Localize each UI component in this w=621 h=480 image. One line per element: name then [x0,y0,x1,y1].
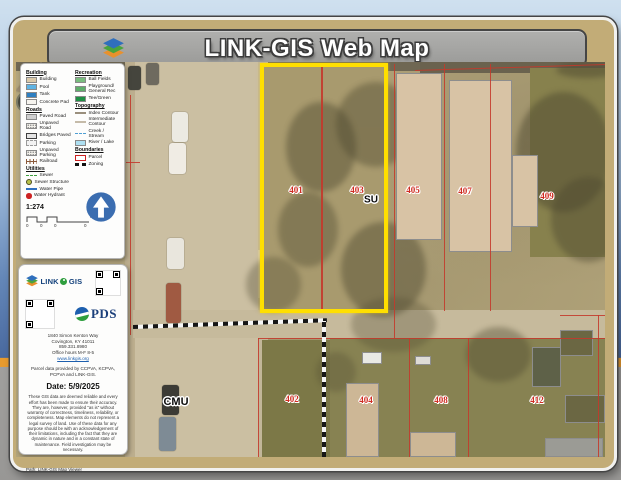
legend-item-label: Parcel [89,155,103,160]
legend-item-label: Creek / Stream [89,129,121,139]
website-link: www.linkgis.org [25,356,121,361]
legend-item-label: Concrete Pad [40,100,69,105]
parcel-line [490,64,491,311]
fill-swatch [75,140,86,146]
legend-item-label: Zoning [89,162,104,167]
qr-code [25,299,55,329]
north-arrow [85,191,117,228]
parcel-label-405: 405 [406,185,420,195]
legend-item: Railroad [26,159,71,164]
page-title: LINK-GIS Web Map [205,35,430,63]
tree-canopy [466,327,531,382]
legend-item: Water Pipe [26,187,71,192]
map-pin-icon [60,278,67,285]
parked-car [166,283,181,323]
line-swatch [75,121,86,123]
legend-item: River / Lake [75,140,120,146]
info-panel: LINK GIS PDS [18,264,128,455]
legend-section-header: Building [26,70,71,76]
legend-item: Unpaved Parking [26,148,71,158]
legend-item-label: Playground/ General Rec [89,84,121,94]
legend-item-label: Parking [40,141,56,146]
parcel-line [468,338,469,457]
parcel-label-402: 402 [285,394,299,404]
qr-code [95,270,121,296]
legend-item-label: Unpaved Road [40,121,72,131]
legend-item: Building [26,77,71,83]
parcel-line [258,338,259,457]
brand-word-link: LINK [41,277,59,286]
zoning-label-SU: SU [364,195,378,206]
fill-swatch [75,77,86,83]
scale-tick-label: 0 [26,223,29,228]
fill-swatch [26,99,37,105]
building-footprint [532,347,561,387]
disclaimer-text: These GIS data are deemed reliable and e… [25,394,121,452]
legend-item-label: Tank [40,92,50,97]
legend-item: Zoning [75,162,120,167]
legend-item: Tee/Green [75,96,120,102]
legend-item-label: Sewer [40,173,54,178]
legend-item-label: Bridges Paved [40,133,71,138]
line-swatch [26,188,37,190]
circle-swatch [26,179,32,185]
legend-item-label: Railroad [40,159,58,164]
fill-swatch [26,84,37,90]
legend-item: Parking [26,140,71,146]
map-canvas[interactable]: 401403405407409402404408412SUCMU Buildin… [16,62,605,457]
map-date: Date: 5/9/2025 [25,382,121,391]
building-footprint [362,352,382,364]
parcel-label-401: 401 [289,185,303,195]
print-footer-path: Path: LINK-GIS Map Viewer [26,467,82,472]
legend-item: Pool [26,84,71,90]
parcel-label-409: 409 [540,191,554,201]
fill-swatch [26,92,37,98]
legend-item-label: Pool [40,85,50,90]
scale-tick-label: 0 [40,223,43,228]
globe-icon [75,307,89,321]
legend-item-label: Sewer Structure [35,180,69,185]
legend-item: Sewer [26,173,71,178]
parcel-line [444,64,445,311]
zoning-label-CMU: CMU [163,396,188,408]
legend-item: Ball Fields [75,77,120,83]
legend-item: Playground/ General Rec [75,84,120,94]
parcel-line [126,162,140,163]
parcel-label-403: 403 [350,185,364,195]
legend-item: Sewer Structure [26,179,71,185]
parcel-line [598,315,599,457]
parcel-line [258,338,605,339]
building-footprint [410,432,456,457]
legend-item: Creek / Stream [75,129,120,139]
legend-item: Parcel [75,155,120,161]
legend-section-header: Roads [26,107,71,113]
fill-swatch [75,86,86,92]
legend-item-label: Water Hydrant [34,193,65,198]
parked-car [169,143,186,174]
thick-outline-swatch [26,133,37,139]
legend-column-left: BuildingBuildingPoolTankConcrete PadRoad… [26,68,71,200]
legend-item: Unpaved Road [26,121,71,131]
legend-section-header: Boundaries [75,147,120,153]
dashdot-line-swatch [75,133,86,134]
legend-item: Water Hydrant [26,193,71,199]
legend-item: Paved Road [26,114,71,120]
legend-section-header: Recreation [75,70,120,76]
scale-tick-label: 0 [54,223,57,228]
building-footprint [545,438,603,457]
fill-swatch [26,77,37,83]
legend-item: Tank [26,92,71,98]
fill-swatch [26,114,37,120]
building-footprint [415,356,431,365]
layers-icon [25,274,39,288]
zoning-dash-swatch [75,163,86,166]
address-line: Office hours M-F 8-5 [25,350,121,356]
legend-item-label: Tee/Green [89,96,111,101]
parcel-label-412: 412 [530,395,544,405]
railroad-swatch [26,159,37,164]
zoning-boundary-line-vertical [322,321,326,457]
legend-panel: BuildingBuildingPoolTankConcrete PadRoad… [20,63,125,259]
pds-logo: PDS [75,306,117,322]
parcel-label-404: 404 [359,395,373,405]
desktop-background: LINK-GIS Web Map 40140340540740940240440… [0,0,621,480]
legend-item-label: Index Contour [89,111,119,116]
legend-section-header: Topography [75,103,120,109]
line-swatch [75,112,86,114]
legend-item-label: Water Pipe [40,187,64,192]
legend-item: Intermediate Contour [75,117,120,127]
parked-car [159,417,176,451]
linkgis-logo: LINK GIS [25,274,82,288]
parked-car [146,63,159,85]
parcel-label-408: 408 [434,395,448,405]
parcel-outline-swatch [75,155,86,161]
parcel-line [130,95,131,335]
legend-section-header: Utilities [26,166,71,172]
dotted-swatch [26,123,37,129]
legend-item-label: Building [40,77,57,82]
legend-item-label: Unpaved Parking [40,148,72,158]
scale-block: 1:274 mi 0000 [26,204,120,240]
dashed-outline-swatch [26,140,37,146]
brand-word-gis: GIS [69,277,83,286]
legend-column-right: RecreationBall FieldsPlayground/ General… [75,68,120,200]
data-credit: Parcel data provided by CCPVA, KCPVA, PC… [25,366,121,377]
legend-item: Index Contour [75,111,120,116]
legend-item-label: Ball Fields [89,77,111,82]
parked-car [128,66,141,90]
parked-car [167,238,184,269]
building-footprint [560,330,593,356]
dotted-swatch [26,150,37,156]
building-footprint [512,155,538,227]
map-window: LINK-GIS Web Map 40140340540740940240440… [10,17,617,471]
legend-item-label: River / Lake [89,140,115,145]
pds-wordmark: PDS [91,306,117,322]
legend-item-label: Intermediate Contour [89,117,121,127]
fill-swatch [75,96,86,102]
legend-item: Bridges Paved [26,133,71,139]
aerial-ground-patch [135,62,258,457]
parked-car [172,112,188,142]
building-footprint [449,80,512,252]
highlighted-parcel-outline [260,63,388,313]
legend-item: Concrete Pad [26,99,71,105]
parcel-line [409,338,410,457]
parcel-line [394,64,395,338]
dot-swatch [26,193,32,199]
parcel-label-407: 407 [458,186,472,196]
building-footprint [396,73,442,240]
legend-item-label: Paved Road [40,114,66,119]
address-block: 1840 Simon Kenton WayCovington, KY 41011… [25,333,121,356]
dashed-line-swatch [26,175,37,176]
